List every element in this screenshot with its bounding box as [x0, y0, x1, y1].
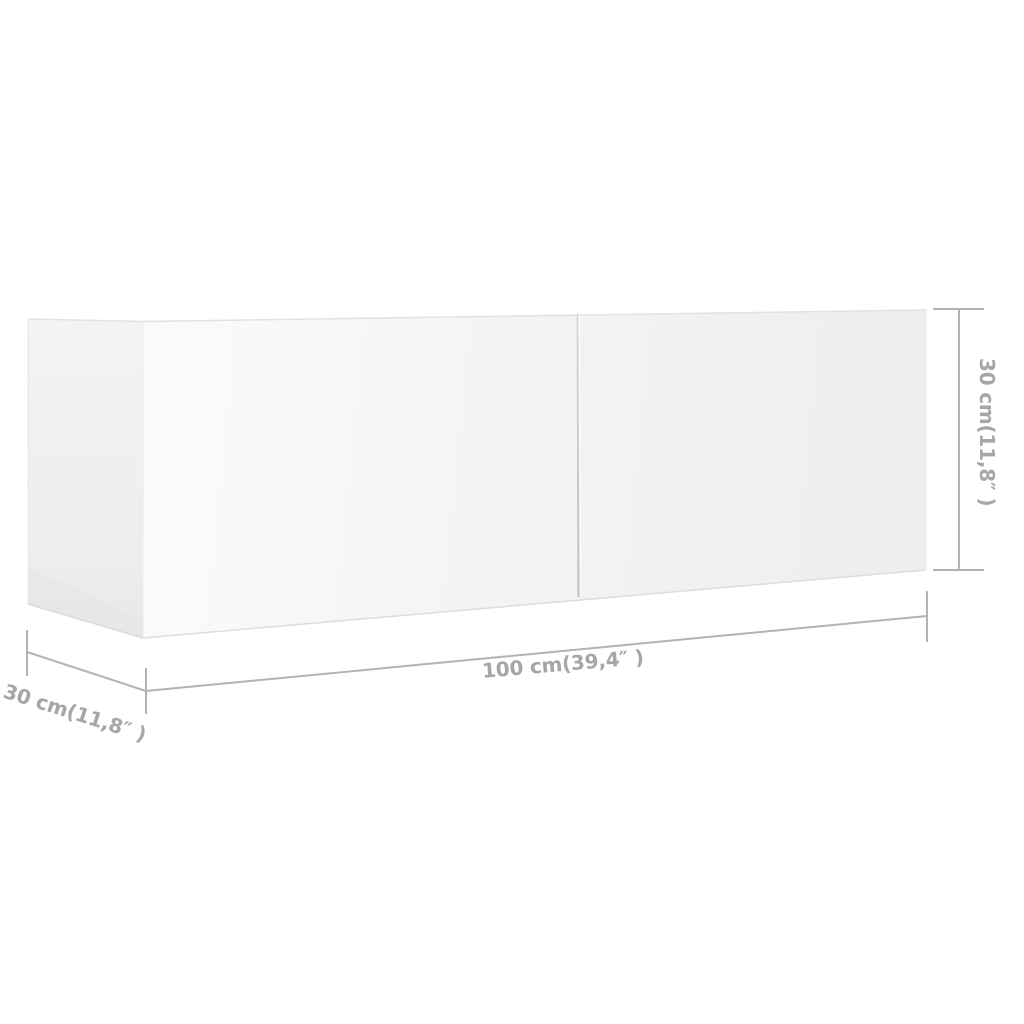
cabinet-door-gap-line — [578, 314, 579, 598]
product-dimension-image: 100 cm(39,4″ ) 30 cm(11,8″ ) 30 cm(11,8″… — [0, 0, 1024, 1024]
cabinet-front-face — [143, 310, 926, 638]
height-dimension-label: 30 cm(11,8″ ) — [974, 358, 1000, 506]
depth-dimension-line — [27, 652, 146, 691]
cabinet-diagram-canvas — [0, 0, 1024, 1024]
